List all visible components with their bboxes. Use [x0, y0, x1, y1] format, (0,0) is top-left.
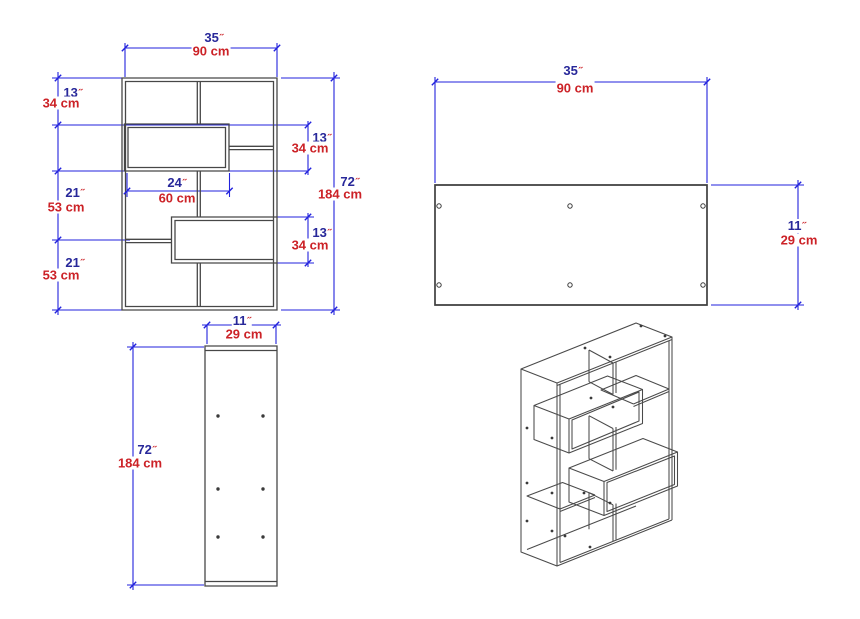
dim-label-inch-front-2: 21˝ — [64, 186, 85, 200]
dim-label-cm-side-10: 29 cm — [225, 328, 264, 341]
dim-label-cm-front-0: 90 cm — [192, 45, 231, 58]
dim-label-cm-front-1: 34 cm — [42, 97, 81, 110]
dim-label-cm-front-5: 34 cm — [291, 239, 330, 252]
technical-drawing-sheet: 35˝90 cm13˝34 cm21˝53 cm21˝53 cm13˝34 cm… — [0, 0, 860, 619]
dim-label-cm-plan-8: 90 cm — [556, 82, 595, 95]
inch-mark: ˝ — [183, 178, 187, 190]
dim-label-cm-plan-9: 29 cm — [780, 234, 819, 247]
dim-label-inch-plan-9: 11˝ — [787, 219, 807, 233]
inch-mark: ˝ — [81, 258, 85, 270]
dim-label-layer: 35˝90 cm13˝34 cm21˝53 cm21˝53 cm13˝34 cm… — [0, 0, 860, 619]
dim-label-cm-front-2: 53 cm — [47, 201, 86, 214]
dim-label-cm-front-4: 34 cm — [291, 142, 330, 155]
inch-mark: ˝ — [81, 188, 85, 200]
dim-label-cm-front-6: 184 cm — [317, 188, 363, 201]
dim-label-inch-plan-8: 35˝ — [562, 64, 583, 78]
dim-label-cm-front-3: 53 cm — [42, 269, 81, 282]
inch-mark: ˝ — [803, 221, 807, 233]
dim-label-inch-front-7: 24˝ — [166, 176, 187, 190]
dim-label-cm-front-7: 60 cm — [158, 192, 197, 205]
dim-label-cm-side-11: 184 cm — [117, 457, 163, 470]
inch-mark: ˝ — [579, 66, 583, 78]
